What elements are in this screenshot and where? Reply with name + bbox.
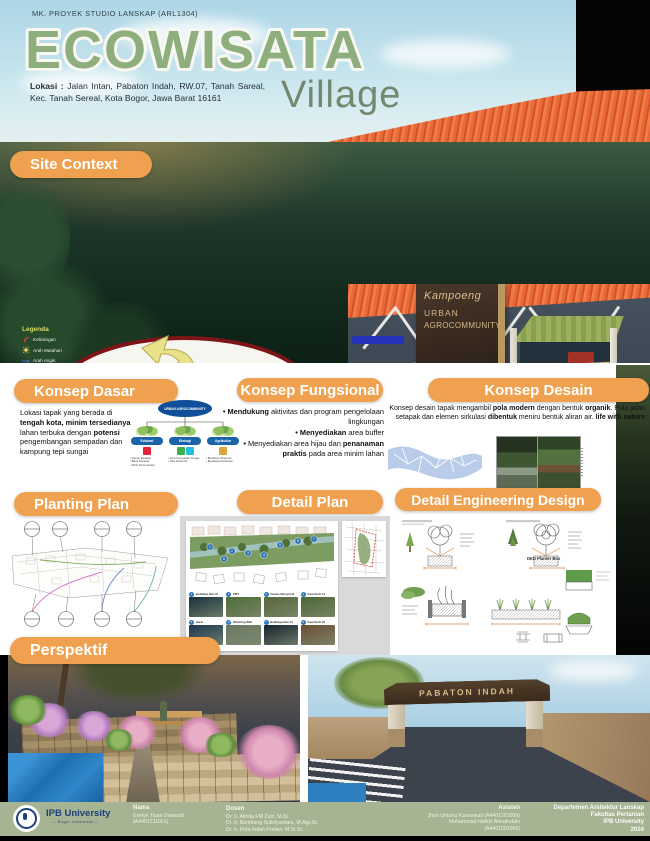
plan-marker-number: 2: [231, 549, 233, 553]
person-silhouette: [160, 701, 167, 721]
nama-lines: Evelyn Tissa Oswandi(A4401211001): [133, 813, 225, 826]
text-segment: Menyediakan: [300, 428, 346, 437]
plan-marker-number: 3: [247, 551, 249, 555]
river-water: [8, 753, 103, 802]
gate-sign: PABATON INDAH: [384, 679, 551, 705]
thumb-image: [301, 597, 335, 617]
thumb-item: 7Budidaya Ikan #2: [264, 619, 298, 645]
legend-label: Arah Matahari: [33, 348, 62, 353]
konsep-desain-heading: Konsep Desain: [428, 378, 649, 402]
thumb-item: 3Taman Hidroponik: [264, 591, 298, 617]
konsep-fungsional-bullets: • Mendukung aktivitas dan program pengel…: [220, 407, 384, 460]
plan-marker-number: 7: [313, 537, 315, 541]
thumb-item: 4View Deck #1: [301, 591, 335, 617]
thumb-image: [264, 625, 298, 645]
heading-label: Planting Plan: [34, 496, 129, 513]
poster-title-art: ECOWISATA: [22, 14, 367, 82]
awning: [352, 336, 404, 344]
thumb-image: [301, 625, 335, 645]
people-icon: [174, 426, 196, 436]
brand-subtitle: — Bogor Indonesia —: [52, 820, 99, 824]
sdg-icon: [186, 447, 194, 455]
text-segment: Lokasi tapak yang berada di: [20, 408, 112, 417]
thumb-label: KWT: [233, 592, 239, 596]
thumb-number: 6: [226, 620, 231, 625]
nama-label: Nama: [133, 805, 225, 812]
poster-subtitle: Village: [281, 74, 401, 117]
thumb-item: 6Retaining Wall: [226, 619, 260, 645]
thumb-label: Budidaya Ikan #1: [196, 592, 219, 596]
water-edge: [308, 783, 366, 802]
heading-label: Konsep Dasar: [34, 383, 135, 400]
sun-icon: [22, 346, 30, 354]
detail-plan-card: 12345678 1Budidaya Ikan #12KWT3Taman Hid…: [186, 521, 338, 651]
node-label: Ekologi: [169, 437, 201, 445]
legend-item: Kebisingan: [22, 336, 92, 344]
heading-label: Detail Plan: [272, 494, 349, 511]
sdg-icons: [177, 447, 194, 455]
legend-label: Kebisingan: [33, 337, 56, 342]
ded-drawings: [396, 514, 618, 654]
detail-site-plan: 12345678: [190, 525, 334, 587]
location-value: Jalan Intan, Pabaton Indah, RW.07, Tanah…: [30, 81, 265, 103]
legend-item: Arah Matahari: [22, 346, 92, 354]
heading-label: Perspektif: [30, 642, 107, 660]
text-segment: lahan terbuka dengan: [20, 428, 94, 437]
shrub: [8, 695, 48, 725]
key-map: [342, 521, 386, 577]
detail-plan-heading: Detail Plan: [237, 490, 383, 514]
poster-title: ECOWISATA: [25, 20, 365, 80]
thumb-number: 3: [264, 592, 269, 597]
thumb-label: View Deck #2: [307, 620, 325, 624]
thumb-number: 1: [189, 592, 194, 597]
gate-sign-text: PABATON INDAH: [419, 686, 515, 699]
text-segment: life with nature: [596, 414, 645, 421]
photo-credit-mark: [581, 448, 583, 478]
sdg-icon: [177, 447, 185, 455]
black-margin: [576, 0, 650, 100]
text-segment: pengembangan sempadan dan kampung tepi s…: [20, 437, 122, 456]
thumb-number: 7: [264, 620, 269, 625]
sign-line: URBAN: [424, 308, 459, 318]
footer-line: (A4401201065): [330, 826, 520, 833]
location-text: Lokasi : Jalan Intan, Pabaton Indah, RW.…: [30, 81, 265, 104]
footer-line: Jhon Untung Karosekali (A4401201059): [330, 813, 520, 820]
diagram-node: Edukasi• Taman Edukasi• Bank Sampah• MCK…: [130, 426, 164, 468]
sdg-icon: [143, 447, 151, 455]
cloud: [548, 661, 638, 681]
sign-line: Kampoeng: [424, 290, 481, 302]
footer-line: Muhammad Hafidz Ahnafuddin: [330, 819, 520, 826]
plan-marker-number: 8: [223, 557, 225, 561]
hut-roof: [506, 316, 624, 342]
cloud: [380, 40, 510, 68]
legend-title: Legenda: [22, 326, 92, 333]
diagram-node: Ekologi• Area Sempadan Sungai• Tata Kelo…: [168, 426, 202, 468]
node-bullet: • Tata Kelola Air: [168, 460, 202, 464]
footer-line: Departemen Arsitektur Lanskap: [512, 805, 644, 812]
reference-photo: [537, 436, 581, 489]
flower-bush: [236, 725, 300, 779]
thumb-image: [189, 597, 223, 617]
thumb-item: 8View Deck #2: [301, 619, 335, 645]
node-label: Edukasi: [131, 437, 163, 445]
black-margin: [0, 836, 650, 841]
thumb-image: [226, 625, 260, 645]
people-icon: [136, 426, 158, 436]
shrub: [204, 733, 238, 757]
thumb-number: 2: [226, 592, 231, 597]
text-segment: tengah kota, minim tersedianya: [20, 418, 130, 427]
text-segment: Konsep desain tapak mengambil: [389, 405, 493, 412]
fungsional-bullet: • Menyediakan area buffer: [220, 428, 384, 438]
heading-label: Konsep Desain: [484, 382, 592, 399]
node-bullet: • MCK Percontohan: [130, 464, 164, 468]
diagram-root: URBAN AGROCOMMUNITY: [158, 400, 212, 417]
text-segment: Mendukung: [227, 407, 268, 416]
thumb-label: Mural: [196, 620, 203, 624]
thumb-number: 5: [189, 620, 194, 625]
konsep-dasar-paragraph: Lokasi tapak yang berada di tengah kota,…: [20, 408, 134, 457]
footer-line: 2024: [512, 827, 644, 834]
location-label: Lokasi :: [30, 81, 64, 91]
site-context-heading: Site Context: [10, 151, 152, 178]
organic-pattern-graphic: [388, 438, 482, 488]
thumb-label: Budidaya Ikan #2: [270, 620, 293, 624]
ded-caption: DED Planter Box: [527, 556, 560, 561]
text-segment: meniru bentuk aliran air.: [517, 414, 596, 421]
footer-line: (A4401211001): [133, 819, 225, 826]
node-bullets: • Area Sempadan Sungai• Tata Kelola Air: [168, 457, 202, 465]
thumb-item: 1Budidaya Ikan #1: [189, 591, 223, 617]
plan-marker-number: 6: [297, 539, 299, 543]
thumb-item: 2KWT: [226, 591, 260, 617]
text-segment: dengan bentuk: [535, 405, 585, 412]
text-segment: organik: [585, 405, 610, 412]
konsep-fungsional-heading: Konsep Fungsional: [237, 378, 383, 402]
gate-pillar: [526, 695, 543, 747]
text-segment: pada area minim lahan: [307, 449, 384, 458]
fungsional-bullet: • Menyediakan area hijau dan penanaman p…: [220, 439, 384, 459]
thumb-label: Taman Hidroponik: [270, 592, 294, 596]
heading-label: Detail Engineering Design: [411, 492, 584, 508]
text-segment: dibentuk: [488, 414, 517, 421]
sdg-icons: [143, 447, 151, 455]
poster: MK. PROYEK STUDIO LANSKAP (ARL1304) ECOW…: [0, 0, 650, 841]
perspective-render-1: [8, 655, 300, 802]
node-bullet: • Budidaya Perikanan: [206, 460, 240, 464]
thumb-label: Retaining Wall: [233, 620, 252, 624]
footer-department: Departemen Arsitektur LanskapFakultas Pe…: [512, 805, 644, 834]
reference-photo: [496, 436, 538, 489]
plan-marker-number: 1: [209, 545, 211, 549]
sign-line: AGROCOMMUNITY: [424, 321, 501, 330]
asisten-lines: Jhon Untung Karosekali (A4401201059)Muha…: [330, 813, 520, 833]
black-margin: [0, 655, 8, 802]
text-segment: Menyediakan area hijau dan: [248, 439, 343, 448]
text-segment: aktivitas dan program pengelolaan lingku…: [269, 407, 384, 426]
thumb-label: View Deck #1: [307, 592, 325, 596]
image-gap: [300, 655, 308, 802]
text-segment: pola modern: [493, 405, 535, 412]
plan-marker-number: 4: [263, 553, 265, 557]
brand-name: IPB University: [46, 808, 110, 819]
planting-plan-heading: Planting Plan: [14, 492, 178, 516]
shrub: [104, 729, 134, 751]
perspective-render-2: PABATON INDAH: [308, 655, 650, 802]
footer-nama: Nama Evelyn Tissa Oswandi(A4401211001): [133, 805, 225, 826]
text-segment: potensi: [94, 428, 120, 437]
boundary-wall: [308, 717, 392, 759]
fungsional-bullet: • Mendukung aktivitas dan program pengel…: [220, 407, 384, 427]
konsep-desain-paragraph: Konsep desain tapak mengambil pola moder…: [388, 404, 645, 422]
detail-plan-panel: 12345678 1Budidaya Ikan #12KWT3Taman Hid…: [180, 516, 390, 655]
planting-plan-drawing: [6, 518, 176, 630]
plan-marker-number: 5: [279, 543, 281, 547]
thumb-image: [264, 597, 298, 617]
ded-heading: Detail Engineering Design: [395, 488, 601, 511]
thumb-image: [226, 597, 260, 617]
node-bullets: • Taman Edukasi• Bank Sampah• MCK Percon…: [130, 457, 164, 468]
footer-line: Evelyn Tissa Oswandi: [133, 813, 225, 820]
asisten-label: Asisten: [330, 805, 520, 812]
heading-label: Site Context: [30, 156, 118, 173]
perspektif-heading: Perspektif: [10, 637, 220, 664]
ipb-logo-icon: [13, 805, 40, 832]
thumb-number: 4: [301, 592, 306, 597]
footer-asisten: Asisten Jhon Untung Karosekali (A4401201…: [330, 805, 520, 832]
footer-line: IPB University: [512, 819, 644, 826]
footer-line: Fakultas Pertanian: [512, 812, 644, 819]
noise-icon: [22, 336, 30, 344]
text-segment: area buffer: [346, 428, 384, 437]
thumb-number: 8: [301, 620, 306, 625]
heading-label: Konsep Fungsional: [240, 382, 379, 399]
